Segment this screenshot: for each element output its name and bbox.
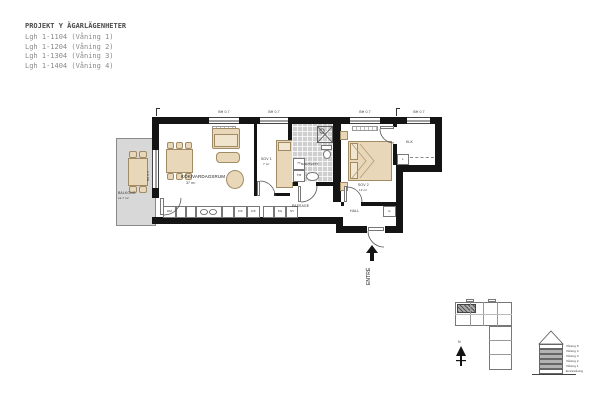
siteplan-unit-divider [489,354,512,355]
balcony-chair [139,151,147,158]
kitchen-cabinet [176,206,186,218]
bathroom-door-leaf [298,186,301,202]
siteplan-corridor-line [455,314,512,315]
window-height-label: BH 0.7 [350,110,380,114]
balcony-table [128,158,148,186]
grid-tick [156,108,160,116]
passage-label: PASSAGE [292,204,309,208]
wall-segment [152,117,209,124]
window [209,117,239,124]
unit-list-item: Lgh 1-1304 (Våning 3) [25,52,126,62]
window-height-label: BH 0.7 [259,110,289,114]
stove [222,206,234,218]
dishwasher: DM [163,206,176,218]
wall-segment [288,117,350,124]
partition-wall [274,193,290,196]
entrance-door-arc [368,231,384,247]
wall-segment [380,117,407,124]
siteplan-balcony-bump [466,299,474,302]
wall-segment [152,217,343,224]
stack-floor-label: Våning 4 [566,350,579,354]
balcony-chair [139,186,147,193]
stack-floor-label: Entrévåning [566,370,583,374]
washbasin [306,172,319,181]
sofa-seat [214,134,238,147]
dining-table [166,149,193,173]
nightstand [340,131,348,140]
freezer: K/F [247,206,260,218]
balcony-glass-height-label: BH 0.4 [147,171,151,181]
balcony-door-leaf [160,198,164,215]
north-label: N [458,340,461,344]
siteplan-balcony-bump [488,299,496,302]
cabinet-sg: SG [274,206,286,218]
ground-line [532,374,576,375]
window-height-label: BH 0.7 [404,110,434,114]
dining-chair [185,142,192,149]
livingroom-area-label: 37 m² [186,181,195,185]
closet-door-leaf [380,126,394,129]
dining-chair [167,173,174,180]
bedroom1-door-arc [260,181,275,196]
livingroom-label: KÖK/VARDAGSRUM [181,174,225,179]
tall-cabinet [263,206,274,218]
wall-segment [152,117,159,150]
closet-rail [410,157,434,158]
title-block: PROJEKT Y ÄGARLÄGENHETER Lgh 1-1104 (Vån… [25,22,126,71]
unit-list-item: Lgh 1-1404 (Våning 4) [25,62,126,72]
bedroom2-area-label: 12 m² [359,189,367,193]
bedroom1-door-leaf [257,181,260,196]
project-title: PROJEKT Y ÄGARLÄGENHETER [25,22,126,30]
armchair [226,170,244,189]
radiator [352,126,378,131]
bathroom-label: BAD/TVÄTT [301,163,318,167]
window [260,117,288,124]
siteplan-wing-vertical [489,326,512,370]
shower [317,126,333,143]
window [350,117,380,124]
wall-segment [396,165,403,233]
wall-segment [152,188,159,198]
north-arrow-crossbar [456,360,466,361]
siteplan-highlighted-unit [457,304,476,313]
fridge: K/F [234,206,247,218]
balcony-window [152,150,159,188]
wardrobe-cabinet: G [383,206,396,217]
coffee-table [216,152,240,163]
partition-wall [341,202,344,206]
pillow [278,142,291,151]
stack-floor-label: Våning 5 [566,345,579,349]
floorplan-sheet: PROJEKT Y ÄGARLÄGENHETER Lgh 1-1104 (Vån… [0,0,600,400]
balcony-label: BALKONG [118,191,136,195]
entrance-arrow-shaft [370,253,374,261]
wall-segment [435,117,442,172]
bedroom2-label: SOV 2 [358,183,369,187]
window-height-label: BH 0.7 [209,110,239,114]
dining-chair [167,142,174,149]
kitchen-cabinet [186,206,196,218]
bedroom2-door-leaf [344,186,347,202]
toilet-bowl [323,150,331,159]
wall-segment [385,226,403,233]
balcony-chair [129,151,137,158]
bedroom1-label: SOV 1 [261,157,272,161]
stack-roof [539,331,563,344]
unit-list-item: Lgh 1-1104 (Våning 1) [25,33,126,43]
stack-floor-label: Våning 3 [566,355,579,359]
kitchen-sink [196,206,222,218]
bedroom1-area-label: 7 m² [263,163,269,167]
closet-label: KLK [406,140,413,144]
bathroom-door-arc [301,186,317,202]
pillow [350,162,358,179]
entrance-label: ENTRÉ [367,268,372,285]
balcony-area-label: ca 7 m² [118,197,129,201]
stack-floor-label: Våning 1 [566,365,579,369]
grid-tick [396,108,400,116]
unit-list-item: Lgh 1-1204 (Våning 2) [25,43,126,53]
entrance-arrow-icon [366,245,378,253]
north-arrow-shaft [460,356,462,366]
entrance-door-leaf [368,227,384,231]
north-arrow-icon [456,346,466,356]
dining-chair [176,142,183,149]
stack-floor-label: Våning 2 [566,360,579,364]
washing-machine: TM [293,170,305,182]
window [407,117,430,124]
wall-segment [239,117,260,124]
pillow [350,143,358,160]
siteplan-unit-divider [489,340,512,341]
linen-cabinet: L [397,154,409,165]
hall-label: HALL [350,209,359,213]
